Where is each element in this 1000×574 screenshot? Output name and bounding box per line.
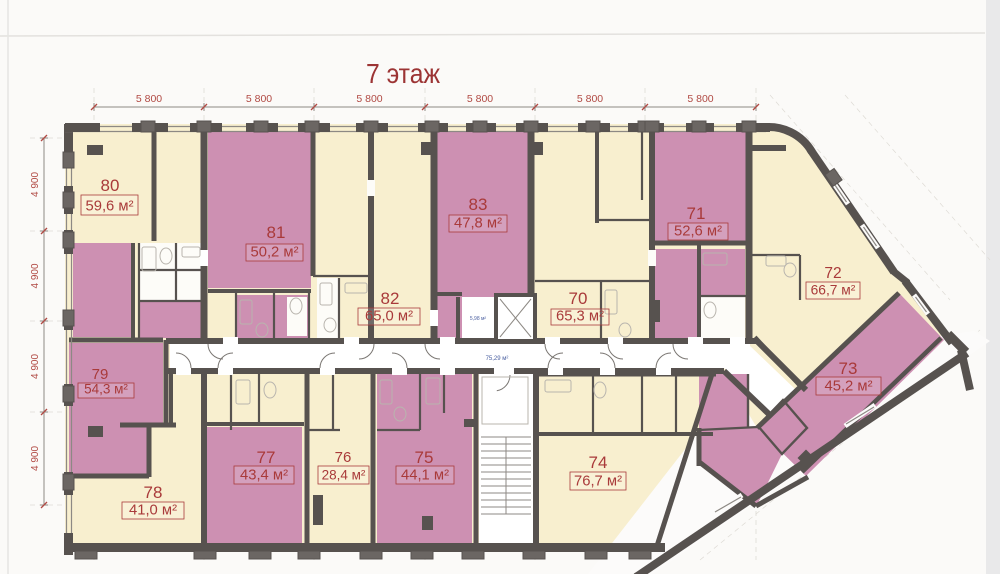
svg-text:59,6 м²: 59,6 м²: [85, 199, 133, 215]
svg-text:74: 74: [589, 453, 608, 472]
svg-text:5 800: 5 800: [467, 93, 493, 105]
svg-text:45,2 м²: 45,2 м²: [824, 379, 872, 395]
svg-text:43,4 м²: 43,4 м²: [240, 468, 288, 484]
svg-text:54,3 м²: 54,3 м²: [84, 382, 128, 397]
svg-text:75: 75: [415, 448, 434, 467]
svg-text:50,2 м²: 50,2 м²: [250, 245, 298, 261]
svg-text:66,7 м²: 66,7 м²: [811, 283, 856, 298]
svg-text:82: 82: [381, 289, 400, 308]
svg-text:4 900: 4 900: [30, 263, 41, 288]
svg-text:41,0 м²: 41,0 м²: [129, 503, 177, 519]
svg-text:77: 77: [257, 448, 276, 467]
svg-text:5 800: 5 800: [356, 93, 382, 105]
svg-text:76: 76: [335, 449, 352, 466]
svg-text:83: 83: [469, 195, 488, 214]
svg-text:75,29 м²: 75,29 м²: [486, 356, 509, 362]
svg-text:76,7 м²: 76,7 м²: [574, 474, 622, 490]
svg-text:52,6 м²: 52,6 м²: [674, 224, 722, 240]
svg-text:28,4 м²: 28,4 м²: [322, 468, 366, 483]
svg-text:47,8 м²: 47,8 м²: [454, 216, 502, 232]
svg-text:5 800: 5 800: [577, 93, 603, 105]
svg-text:70: 70: [569, 289, 588, 308]
svg-text:65,0 м²: 65,0 м²: [365, 309, 413, 325]
svg-text:71: 71: [687, 204, 706, 223]
svg-text:4 900: 4 900: [30, 172, 41, 197]
svg-text:44,1 м²: 44,1 м²: [401, 468, 449, 484]
svg-text:65,3 м²: 65,3 м²: [556, 309, 604, 325]
svg-text:4 900: 4 900: [30, 354, 41, 379]
svg-text:78: 78: [144, 483, 163, 502]
svg-text:5 800: 5 800: [246, 93, 272, 105]
svg-text:79: 79: [92, 366, 109, 383]
svg-text:5 800: 5 800: [136, 93, 162, 105]
svg-text:4 900: 4 900: [30, 446, 41, 471]
svg-text:5,98 м²: 5,98 м²: [470, 316, 487, 322]
svg-text:5 800: 5 800: [687, 93, 713, 105]
svg-text:7 этаж: 7 этаж: [366, 58, 440, 89]
svg-text:80: 80: [101, 176, 120, 195]
svg-text:72: 72: [824, 265, 841, 282]
svg-text:73: 73: [839, 359, 858, 378]
svg-text:81: 81: [267, 223, 286, 242]
